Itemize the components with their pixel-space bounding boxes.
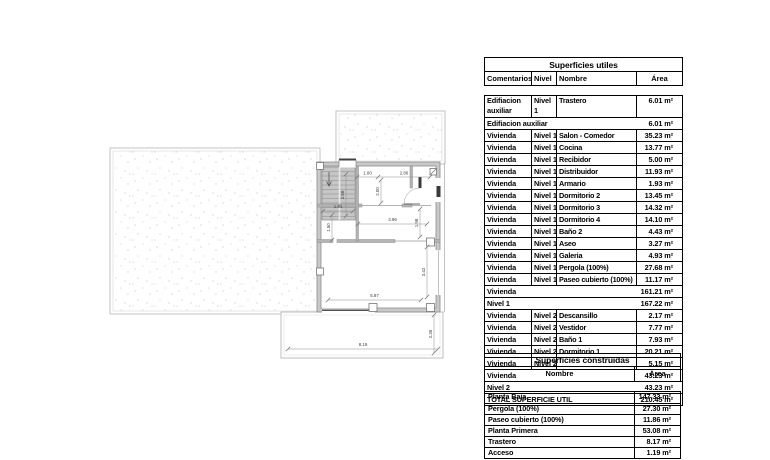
nivel-cell: Nivel 1 [531,96,556,117]
right-wall-opening [436,250,442,295]
nombre-cell: Acceso [485,448,634,458]
nombre-cell: Salon - Comedor [556,130,636,141]
area-cell: 6.01 m² [580,118,682,129]
comentarios-cell: Vivienda [485,226,531,237]
table-row: ViviendaNivel 2Baño 17.93 m² [485,333,682,345]
area-cell: 4.43 m² [636,226,682,237]
nivel-cell: Nivel 2 [531,310,556,321]
table-row: ViviendaNivel 1Paseo cubierto (100%)11.1… [485,273,682,285]
table-row: ViviendaNivel 1Salon - Comedor35.23 m² [485,129,682,141]
nivel-cell: Nivel 1 [531,178,556,189]
bottom-window [322,308,375,315]
area-cell: 35.23 m² [636,130,682,141]
row-label: Edifiacion auxiliar [485,118,580,129]
dim-3-96: 3.96 [388,217,397,222]
plot-region-top-right [336,111,445,164]
dim-2-00: 2.00 [375,187,380,196]
area-cell: 7.93 m² [636,334,682,345]
nivel-cell: Nivel 1 [531,238,556,249]
table-row: ViviendaNivel 1Pergola (100%)27.68 m² [485,261,682,273]
table-row: ViviendaNivel 1Recibidor5.00 m² [485,153,682,165]
nivel-cell: Nivel 1 [531,226,556,237]
superficies-construidas-title: Superficies construidas [485,354,680,367]
nombre-cell: Descansillo [556,310,636,321]
table-row: ViviendaNivel 1Galeria4.93 m² [485,249,682,261]
column-header-area: Área [636,72,682,85]
nivel-cell: Nivel 1 [531,250,556,261]
table-row: Paseo cubierto (100%)11.86 m² [485,414,680,425]
table-row: ViviendaNivel 2Vestidor7.77 m² [485,321,682,333]
dim-1-81: 1.81 [334,204,343,209]
area-cell: 8.17 m² [634,437,680,447]
nivel-cell: Nivel 2 [531,322,556,333]
table-row: ViviendaNivel 1Aseo3.27 m² [485,237,682,249]
table-row: Edifiacion auxiliar6.01 m² [485,117,682,129]
area-cell: 1.93 m² [636,178,682,189]
row-label: Nivel 1 [485,298,580,309]
dim-1-98: 1.98 [414,218,419,227]
table-row: Acceso1.19 m² [485,447,680,458]
nombre-cell: Trastero [556,96,636,117]
dim-5-87: 5.87 [370,293,379,298]
nivel-cell: Nivel 1 [531,274,556,285]
nombre-cell: Aseo [556,238,636,249]
dim-2-86: 2.86 [400,171,409,176]
dim-8-19: 8.19 [359,342,368,347]
nombre-cell: Galeria [556,250,636,261]
table-row: Vivienda161.21 m² [485,285,682,297]
nombre-cell: Trastero [485,437,634,447]
area-cell: 161.21 m² [580,286,682,297]
nombre-cell: Pergola (100%) [485,404,634,414]
comentarios-cell: Vivienda [485,262,531,273]
area-cell: 3.27 m² [636,238,682,249]
table-row: ViviendaNivel 1Armario1.93 m² [485,177,682,189]
superficies-utiles-title: Superficies utiles [485,58,682,72]
table-row: ViviendaNivel 2Descansillo2.17 m² [485,309,682,321]
plot-region-left [110,148,320,314]
nivel-cell: Nivel 1 [531,202,556,213]
table-row: ViviendaNivel 1Distribuidor11.93 m² [485,165,682,177]
nivel-cell: Nivel 1 [531,190,556,201]
nombre-cell: Vestidor [556,322,636,333]
nombre-cell: Distribuidor [556,166,636,177]
dim-3-42: 3.42 [421,267,426,276]
comentarios-cell: Vivienda [485,166,531,177]
dim-2-35: 2.35 [428,329,433,338]
comentarios-cell: Vivienda [485,310,531,321]
table-row: ViviendaNivel 1Cocina13.77 m² [485,141,682,153]
dim-1-00: 1.00 [363,171,372,176]
floor-plan: 1.00 2.86 2.00 2.58 1.81 1.50 3.96 1.98 … [0,0,480,460]
nivel-cell: Nivel 1 [531,262,556,273]
area-cell: 11.86 m² [634,415,680,425]
nivel-cell: Nivel 1 [531,166,556,177]
column-header-nombre: Nombre [485,367,634,381]
area-cell: 167.22 m² [580,298,682,309]
comentarios-cell: Vivienda [485,178,531,189]
column-header-nombre: Nombre [556,72,636,85]
superficies-utiles-header: Superficies utiles Comentarios Nivel Nom… [484,57,683,86]
superficies-construidas-header: Superficies construidas Nombre Área [484,353,681,382]
area-cell: 27.30 m² [634,404,680,414]
nombre-cell: Baño 2 [556,226,636,237]
nivel-cell: Nivel 1 [531,130,556,141]
nombre-cell: Dormitorio 2 [556,190,636,201]
comentarios-cell: Vivienda [485,238,531,249]
comentarios-cell: Vivienda [485,322,531,333]
column-header-nivel: Nivel [531,72,556,85]
nombre-cell: Dormitorio 4 [556,214,636,225]
superficies-construidas-body: Planta Baja147.33 m²Pergola (100%)27.30 … [484,391,681,459]
dim-2-58: 2.58 [340,190,345,199]
entrance-door-top [339,159,356,168]
nombre-cell: Baño 1 [556,334,636,345]
nombre-cell: Recibidor [556,154,636,165]
column-header-comentarios: Comentarios [485,72,531,85]
area-cell: 13.45 m² [636,190,682,201]
superficies-utiles-columns: Comentarios Nivel Nombre Área [485,72,682,85]
area-cell: 147.33 m² [634,392,680,403]
comentarios-cell: Edifiacion auxiliar [485,96,531,117]
table-row: Pergola (100%)27.30 m² [485,403,680,414]
table-row: ViviendaNivel 1Dormitorio 314.32 m² [485,201,682,213]
table-row: ViviendaNivel 1Dormitorio 414.10 m² [485,213,682,225]
area-cell: 14.10 m² [636,214,682,225]
table-row: ViviendaNivel 1Baño 24.43 m² [485,225,682,237]
nombre-cell: Paseo cubierto (100%) [556,274,636,285]
table-row: Edifiacion auxiliarNivel 1Trastero6.01 m… [485,96,682,117]
nivel-cell: Nivel 2 [531,334,556,345]
area-cell: 13.77 m² [636,142,682,153]
nombre-cell: Paseo cubierto (100%) [485,415,634,425]
comentarios-cell: Vivienda [485,130,531,141]
table-row: Nivel 1167.22 m² [485,297,682,309]
nivel-cell: Nivel 1 [531,214,556,225]
nombre-cell: Pergola (100%) [556,262,636,273]
table-row: Planta Baja147.33 m² [485,392,680,403]
nombre-cell: Planta Primera [485,426,634,436]
area-cell: 2.17 m² [636,310,682,321]
terrace-outline [281,312,443,358]
area-cell: 1.19 m² [634,448,680,458]
superficies-construidas-table: Superficies construidas Nombre Área Plan… [484,353,681,459]
comentarios-cell: Vivienda [485,334,531,345]
table-row: ViviendaNivel 1Dormitorio 213.45 m² [485,189,682,201]
comentarios-cell: Vivienda [485,274,531,285]
comentarios-cell: Vivienda [485,214,531,225]
comentarios-cell: Vivienda [485,250,531,261]
comentarios-cell: Vivienda [485,202,531,213]
dim-1-50: 1.50 [326,223,331,232]
area-cell: 53.08 m² [634,426,680,436]
nombre-cell: Armario [556,178,636,189]
nivel-cell: Nivel 1 [531,142,556,153]
area-cell: 27.68 m² [636,262,682,273]
comentarios-cell: Vivienda [485,190,531,201]
superficies-construidas-columns: Nombre Área [485,367,680,381]
area-cell: 11.93 m² [636,166,682,177]
column-header-area: Área [634,367,680,381]
area-cell: 5.00 m² [636,154,682,165]
comentarios-cell: Vivienda [485,154,531,165]
area-cell: 14.32 m² [636,202,682,213]
area-cell: 6.01 m² [636,96,682,117]
table-row: Planta Primera53.08 m² [485,425,680,436]
nombre-cell: Planta Baja [485,392,634,403]
area-cell: 4.93 m² [636,250,682,261]
comentarios-cell: Vivienda [485,142,531,153]
area-cell: 11.17 m² [636,274,682,285]
row-label: Vivienda [485,286,580,297]
nombre-cell: Dormitorio 3 [556,202,636,213]
table-row: Trastero8.17 m² [485,436,680,447]
area-cell: 7.77 m² [636,322,682,333]
nivel-cell: Nivel 1 [531,154,556,165]
nombre-cell: Cocina [556,142,636,153]
